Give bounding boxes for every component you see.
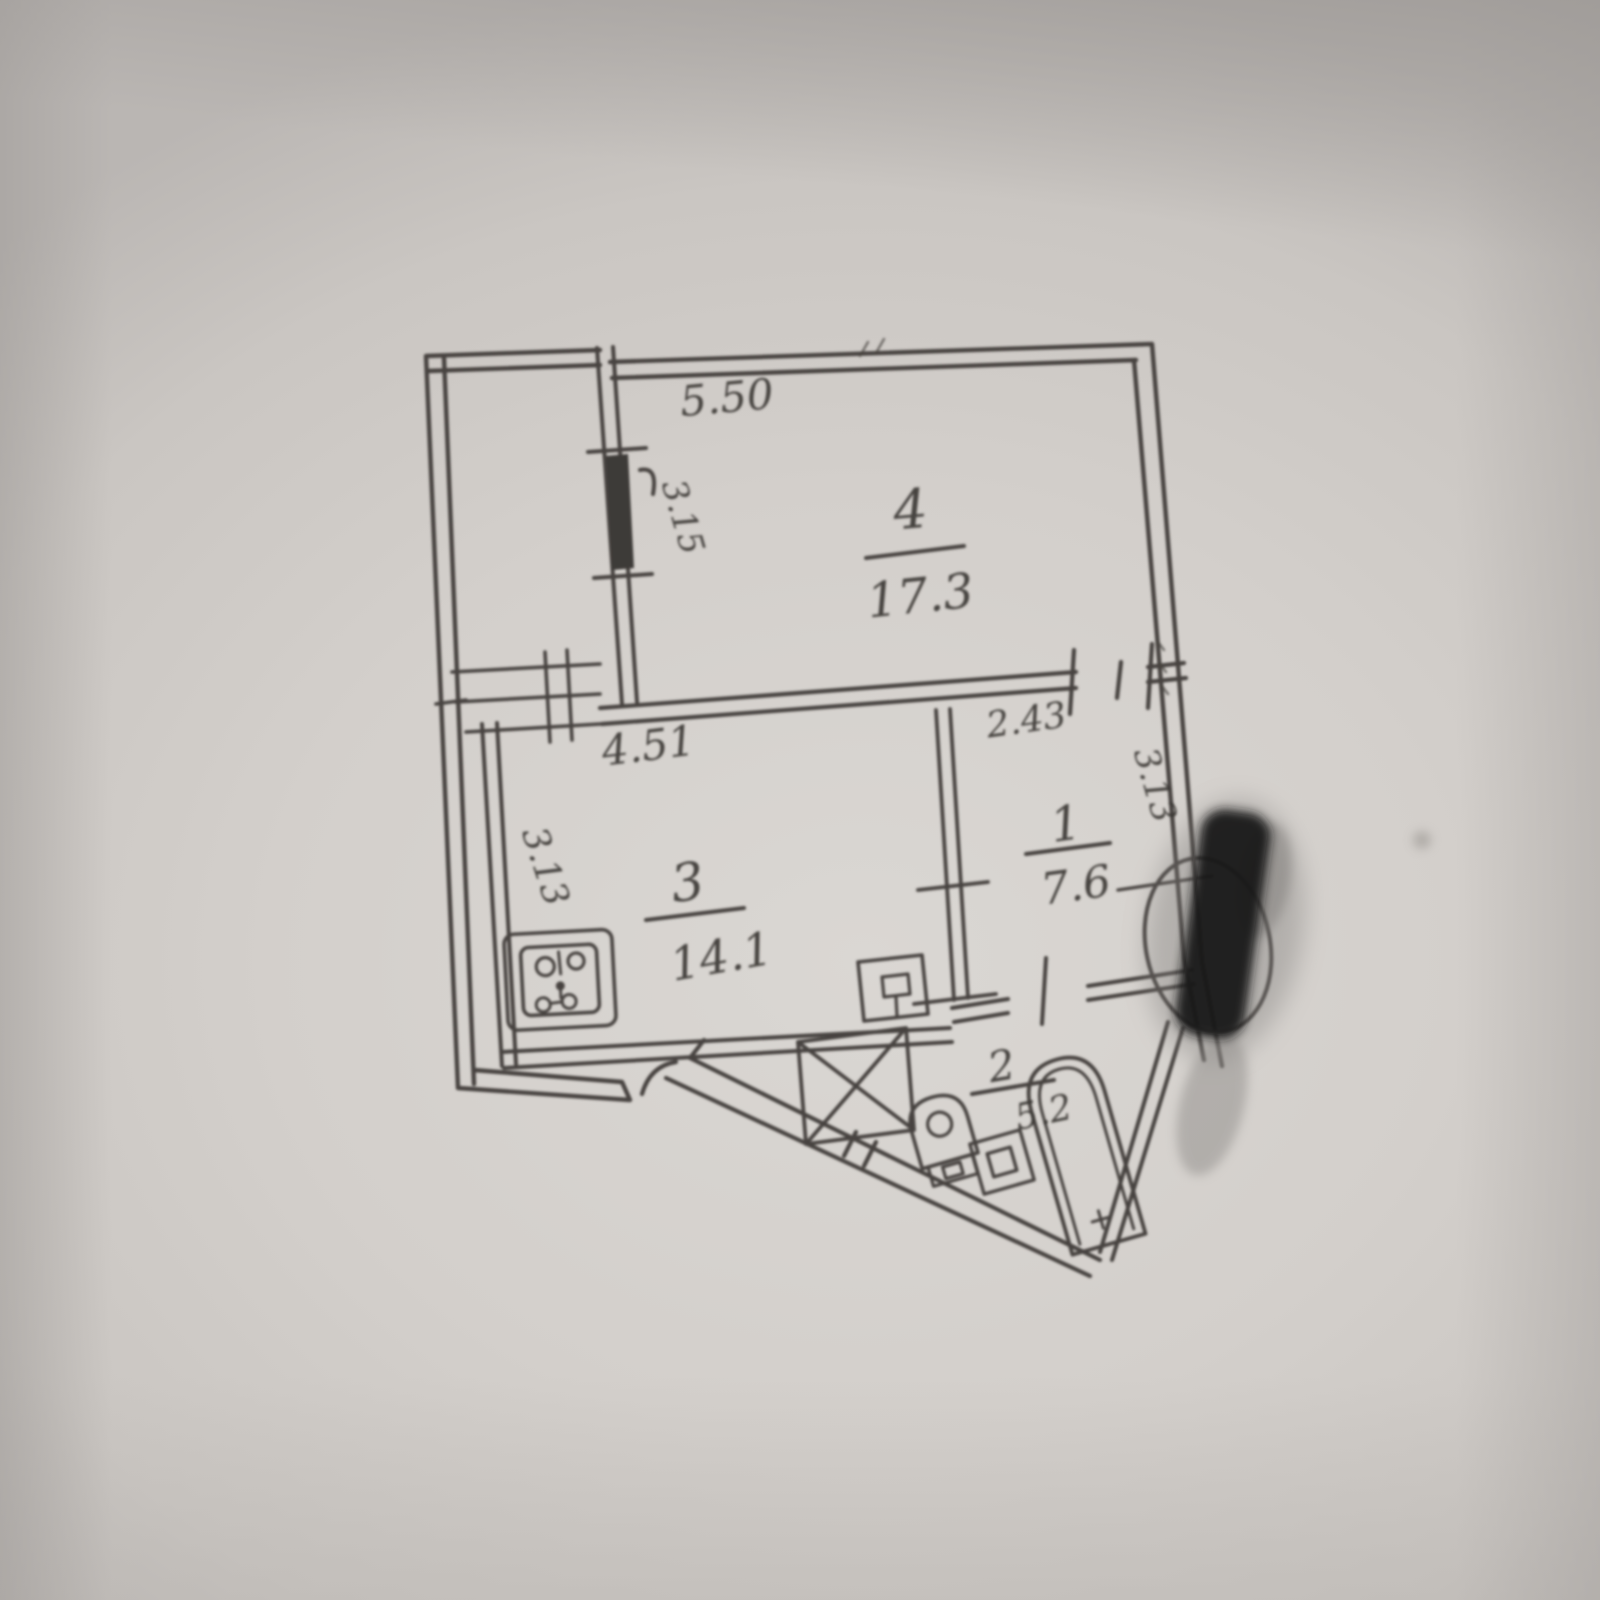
room3-area: 14.1	[666, 921, 776, 992]
redaction-marker	[1127, 787, 1322, 1182]
kitchen-hall-divider	[914, 709, 996, 1004]
bathtub-icon	[1020, 1049, 1146, 1255]
toilet-icon	[904, 1089, 983, 1188]
washbasin-icon	[970, 1130, 1034, 1194]
room2-area: 5.2	[1011, 1087, 1076, 1139]
room2-number: 2	[983, 1039, 1019, 1092]
dim-room1-depth: 3.13	[1125, 743, 1184, 827]
room4-number: 4	[890, 477, 931, 543]
room1-number: 1	[1047, 794, 1085, 854]
room3-number: 3	[667, 851, 708, 915]
stove-icon	[504, 929, 617, 1031]
floor-plan-photo: 4 17.3 5.50 3.15 3 14.1 4.51 3.13 1 7.6 …	[0, 0, 1600, 1600]
outer-walls	[426, 344, 1222, 1100]
dim-room4-width: 5.50	[678, 369, 775, 426]
dim-room4-depth: 3.15	[653, 475, 712, 559]
room1-area: 7.6	[1038, 856, 1114, 916]
mid-wall	[600, 644, 1186, 724]
dim-room3-width: 4.51	[598, 716, 698, 776]
room4-area: 17.3	[864, 563, 976, 630]
dim-room1-width: 2.43	[983, 695, 1069, 747]
paper-smudge	[1413, 831, 1431, 849]
dim-room3-depth: 3.13	[513, 822, 577, 911]
kitchen-sink-icon	[858, 955, 928, 1021]
floor-plan-drawing: 4 17.3 5.50 3.15 3 14.1 4.51 3.13 1 7.6 …	[0, 0, 1600, 1600]
